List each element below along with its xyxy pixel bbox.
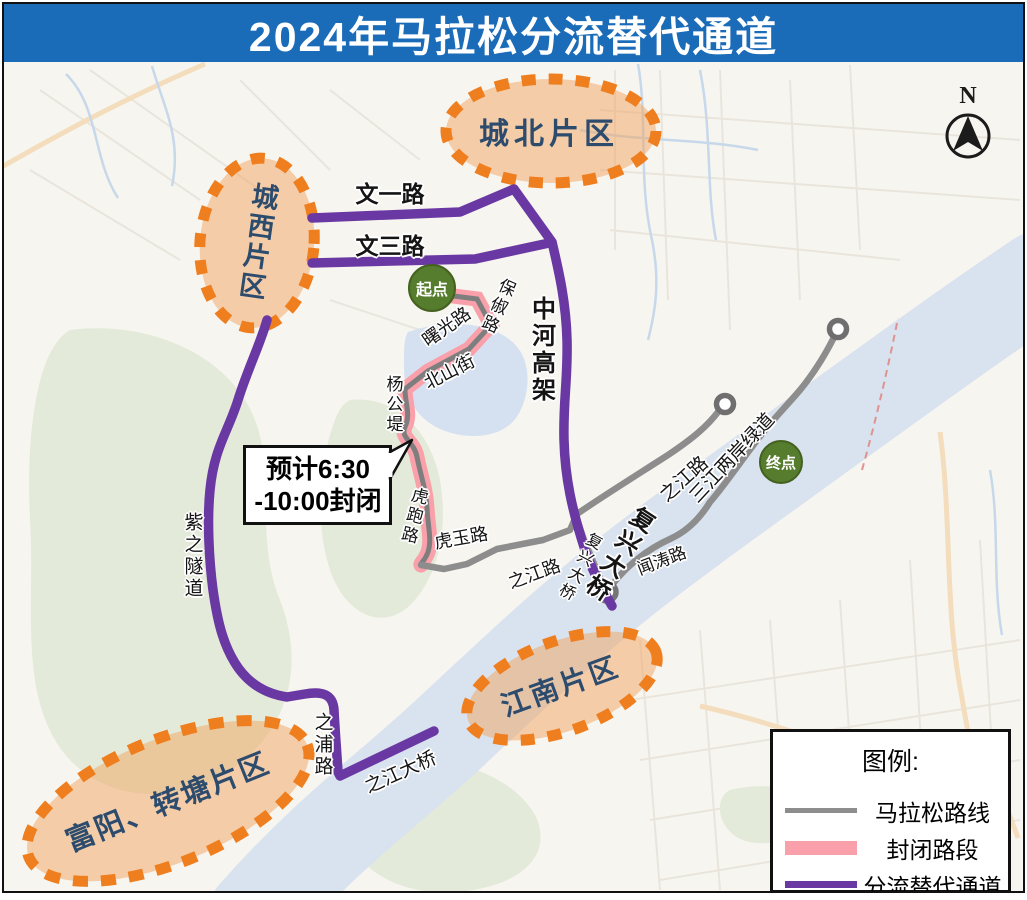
finish-marker: 终点	[759, 440, 803, 484]
compass-icon	[940, 108, 996, 164]
legend-row-marathon: 马拉松路线	[773, 792, 1008, 829]
closed-section-swatch	[785, 841, 857, 855]
start-marker: 起点	[408, 264, 456, 312]
diversion-route-swatch	[785, 881, 857, 888]
district-label-chengbei: 城北片区	[479, 109, 619, 153]
legend-row-closed: 封闭路段	[773, 829, 1008, 866]
compass: N	[938, 84, 998, 169]
road-label-wenyi: 文一路	[356, 175, 425, 209]
road-label-yanggongdi: 杨公堤	[381, 375, 406, 435]
route-loop-marker-west	[717, 396, 734, 413]
marathon-diversion-poster: 城北片区 城西片区 江南片区 富阳、转塘片区 文一路 文三路 中河高架 曙光路 …	[0, 0, 1027, 900]
title-bar: 2024年马拉松分流替代通道	[4, 4, 1023, 62]
compass-n-label: N	[938, 84, 998, 108]
road-label-wensan: 文三路	[356, 227, 425, 261]
page-title: 2024年马拉松分流替代通道	[249, 3, 778, 63]
legend-label-closed: 封闭路段	[857, 831, 1008, 865]
legend-label-marathon: 马拉松路线	[857, 794, 1008, 828]
road-label-zhipu: 之浦路	[309, 712, 336, 778]
marathon-route-swatch	[785, 808, 857, 813]
callout-line1: 预计6:30	[266, 453, 370, 486]
closure-callout: 预计6:30 -10:00封闭	[246, 449, 390, 521]
road-label-zhonghe: 中河高架	[524, 296, 559, 404]
road-label-zizhi-tunnel: 紫之隧道	[179, 512, 206, 600]
callout-line2: -10:00封闭	[254, 485, 381, 518]
route-loop-marker-east	[830, 321, 847, 338]
legend-label-diversion: 分流替代通道	[857, 868, 1008, 900]
legend: 图例: 马拉松路线 封闭路段 分流替代通道	[770, 729, 1011, 893]
legend-row-diversion: 分流替代通道	[773, 866, 1008, 900]
legend-title: 图例:	[773, 742, 1008, 778]
